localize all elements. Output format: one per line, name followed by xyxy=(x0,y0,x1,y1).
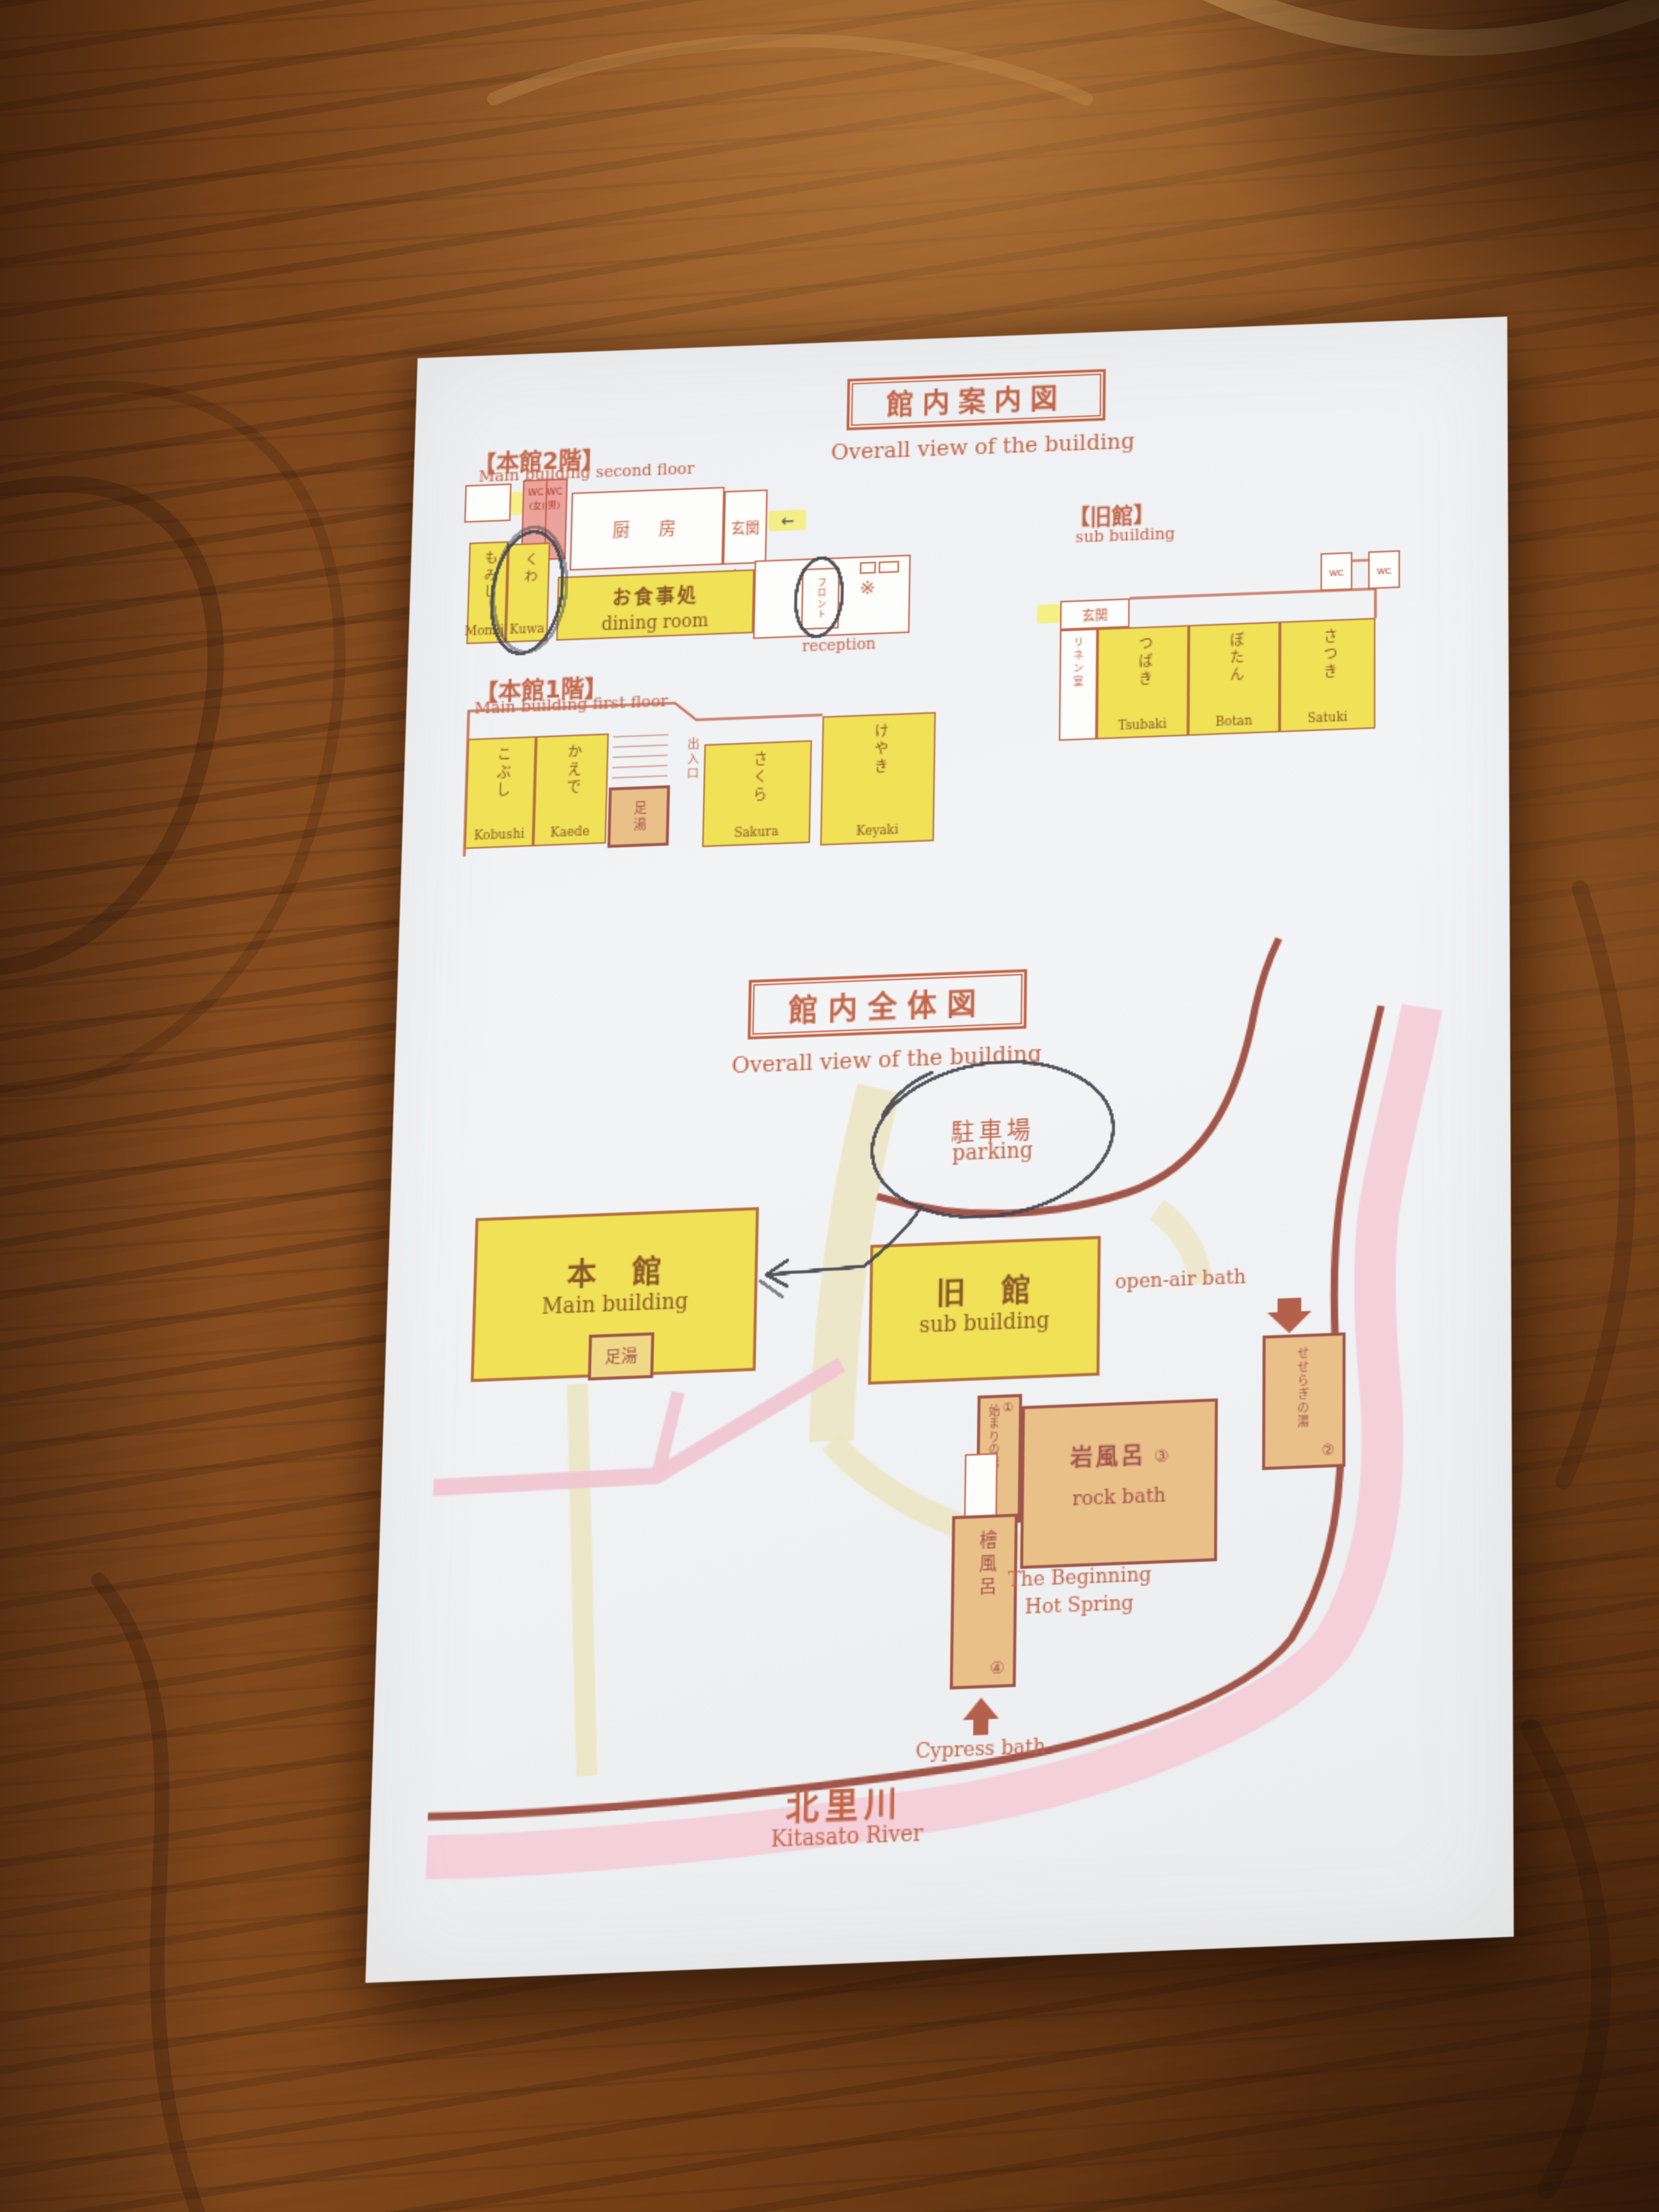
bath-rock-en: rock bath xyxy=(1024,1483,1215,1514)
photo-of-floor-guide: 館内案内図 Overall view of the building 【本館2階… xyxy=(0,0,1659,2212)
room-kuwa: くわ Kuwa xyxy=(505,543,550,643)
main-building-box: 本 館 Main building 足湯 xyxy=(471,1207,759,1382)
highlighter-annex-entrance xyxy=(1037,604,1060,624)
annex-wc-left-label: WC xyxy=(1329,568,1344,579)
bath-hajimari-number: ① xyxy=(1003,1401,1014,1415)
open-air-bath-label: open-air bath xyxy=(1115,1267,1246,1295)
annex-wc-right-label: WC xyxy=(1377,567,1392,577)
annex-entrance: 玄関 xyxy=(1060,599,1130,630)
sub-building-box: 旧 館 sub building xyxy=(868,1236,1101,1385)
room-kaede: かえで Kaede xyxy=(533,733,609,847)
room-kaede-jp: かえで xyxy=(560,743,583,797)
bath-rock-jp: 岩風呂 xyxy=(1070,1441,1147,1472)
room-sakura-en: Sakura xyxy=(734,825,779,842)
room-momiji-en: Momiji xyxy=(464,624,508,640)
room-kobushi-en: Kobushi xyxy=(473,827,524,844)
highlighter-mark-2f-corridor xyxy=(511,492,523,515)
annex-wc-left: WC xyxy=(1321,552,1352,591)
bath-connector xyxy=(964,1453,997,1519)
room-satuki: さつき Satuki xyxy=(1279,618,1375,732)
cypress-label: Cypress bath xyxy=(883,1734,1078,1765)
room-sakura-jp: さくら xyxy=(746,751,769,804)
footbath-1f-label: 足湯 xyxy=(629,800,648,833)
front-desk-label: フロント xyxy=(812,577,828,620)
floor2-entrance: 玄関 xyxy=(723,489,768,565)
bath-rock-number: ③ xyxy=(1154,1446,1169,1466)
annex-entrance-label: 玄関 xyxy=(1082,604,1108,624)
room-tsubaki: つばき Tsubaki xyxy=(1097,625,1189,739)
front-desk-box: フロント xyxy=(801,567,840,630)
lobby-counter-box-2 xyxy=(879,561,899,573)
room-kaede-en: Kaede xyxy=(550,825,590,842)
room-sakura: さくら Sakura xyxy=(702,740,812,847)
main-footbath-label: 足湯 xyxy=(605,1344,638,1369)
room-keyaki: けやき Keyaki xyxy=(820,712,936,845)
dining-room: お食事処 dining room xyxy=(556,569,755,641)
annex-linen-room: リネン室 xyxy=(1059,629,1098,741)
room-botan-en: Botan xyxy=(1215,714,1252,730)
floor-guide-paper: 館内案内図 Overall view of the building 【本館2階… xyxy=(365,317,1514,1983)
room-kuwa-jp: くわ xyxy=(518,551,539,585)
bath-seseragi-jp: せせらぎの湯 xyxy=(1295,1346,1311,1429)
guide-title: 館内案内図 xyxy=(886,377,1066,422)
floor2-kitchen: 厨 房 xyxy=(569,487,724,571)
entrance-jp-label: 玄関 xyxy=(731,516,760,538)
room-tsubaki-en: Tsubaki xyxy=(1118,718,1166,734)
guide-title-box: 館内案内図 xyxy=(847,369,1106,431)
map-title: 館内全体図 xyxy=(788,979,987,1030)
left-arrow-icon: ← xyxy=(781,511,794,530)
floor2-unlabeled-room xyxy=(464,483,511,523)
wc-gender-label: (女)(男) xyxy=(524,497,566,512)
room-botan: ぼたん Botan xyxy=(1188,622,1280,736)
annex-wc-right: WC xyxy=(1368,550,1400,589)
dining-jp: お食事処 xyxy=(612,579,699,610)
room-kuwa-en: Kuwa xyxy=(509,622,544,638)
guide-title-en: Overall view of the building xyxy=(745,425,1220,469)
kitchen-label: 厨 房 xyxy=(612,515,682,543)
reception-label: reception xyxy=(802,636,876,656)
room-satuki-jp: さつき xyxy=(1317,628,1339,681)
bath-rock: 岩風呂 ③ rock bath xyxy=(1020,1398,1218,1569)
bath-seseragi-number: ② xyxy=(1322,1443,1335,1460)
lobby-mark: ※ xyxy=(859,578,875,600)
map-title-en: Overall view of the building xyxy=(644,1036,1129,1082)
floor2-lobby: ※ フロント xyxy=(753,555,911,639)
room-momiji-jp: もみじ xyxy=(477,550,499,601)
footbath-1f: 足湯 xyxy=(607,785,670,848)
dining-en: dining room xyxy=(601,610,709,635)
highlighter-entrance-arrow: ← xyxy=(768,510,806,531)
room-botan-jp: ぼたん xyxy=(1223,631,1245,685)
main-footbath-box: 足湯 xyxy=(588,1332,654,1380)
map-title-box: 館内全体図 xyxy=(748,969,1027,1039)
lobby-counter-box-1 xyxy=(860,562,876,574)
bath-hinoki-number: ④ xyxy=(989,1658,1004,1679)
room-momiji: もみじ Momiji xyxy=(466,541,509,644)
room-tsubaki-jp: つばき xyxy=(1132,635,1154,689)
stairs-icon xyxy=(612,734,668,785)
bath-seseragi: せせらぎの湯 ② xyxy=(1262,1333,1346,1470)
annex-linen-label: リネン室 xyxy=(1071,636,1086,690)
room-keyaki-en: Keyaki xyxy=(856,823,898,840)
room-keyaki-jp: けやき xyxy=(867,723,890,776)
exit-label: 出入口 xyxy=(685,737,702,782)
room-kobushi: こぶし Kobushi xyxy=(465,736,537,849)
room-kobushi-jp: こぶし xyxy=(489,746,513,800)
annex-subheader: sub building xyxy=(1075,524,1175,547)
room-satuki-en: Satuki xyxy=(1307,710,1347,726)
wc-label: WC WC xyxy=(524,480,566,499)
